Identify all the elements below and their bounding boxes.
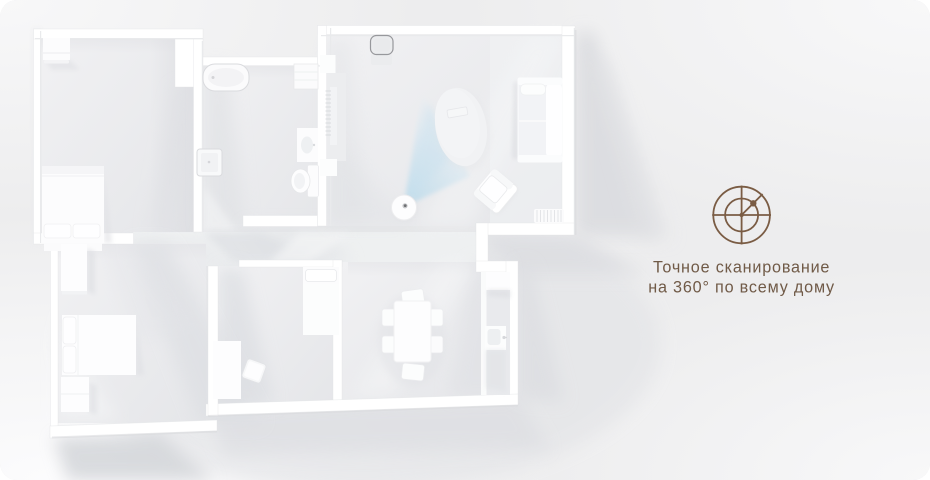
svg-text:на 360° по всему дому: на 360° по всему дому — [648, 278, 835, 296]
svg-text:Точное сканирование: Точное сканирование — [653, 259, 830, 277]
